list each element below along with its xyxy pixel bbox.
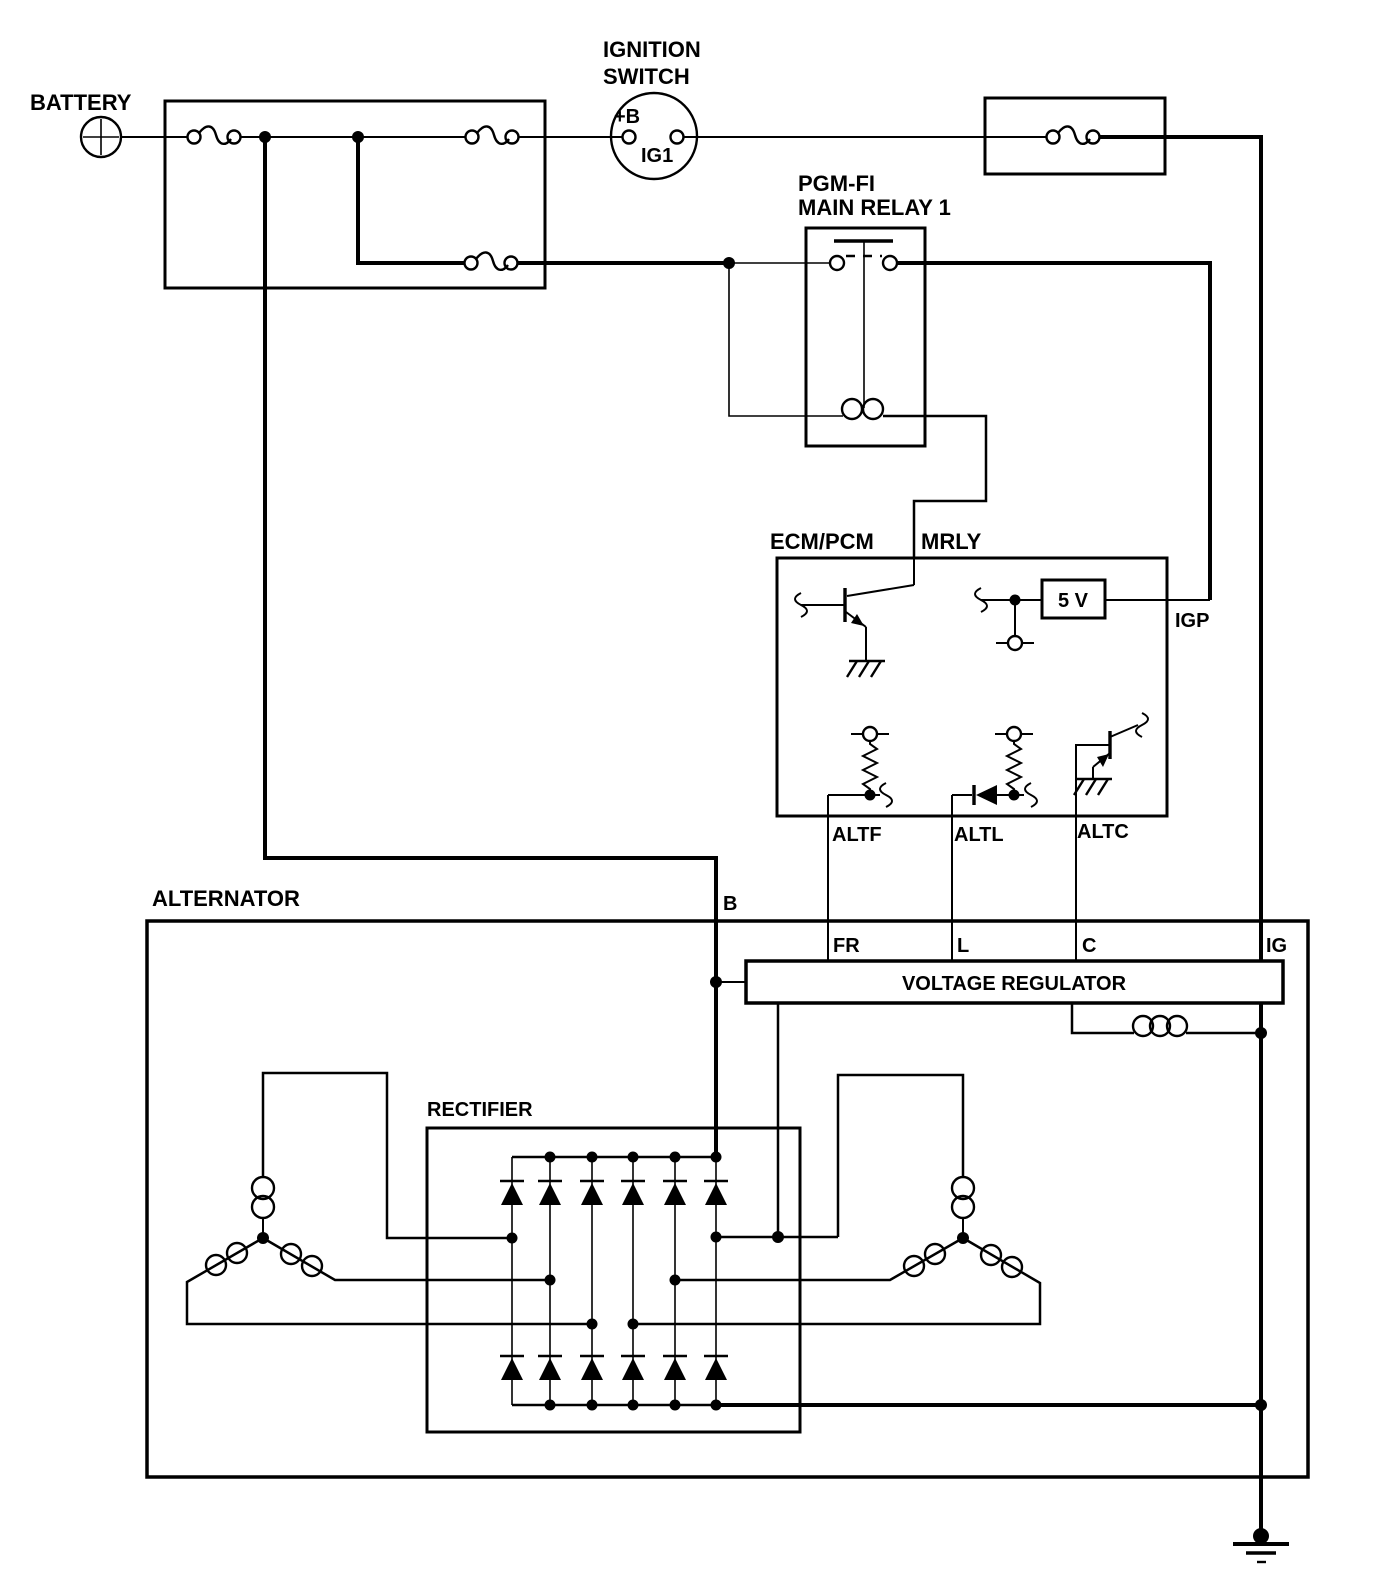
diagram-canvas: BATTERY <box>0 0 1376 1590</box>
wire-regulator-to-field-coil <box>1072 1003 1134 1033</box>
relay-contact-icon <box>830 241 897 408</box>
ignition-switch: IGNITION SWITCH +B IG1 <box>603 37 701 179</box>
wire-stator-phase6-route <box>838 1075 963 1237</box>
ecm-pcm: ECM/PCM MRLY <box>770 529 1210 961</box>
rectifier: RECTIFIER <box>427 1099 1267 1432</box>
voltage-regulator: VOLTAGE REGULATOR <box>710 961 1283 1003</box>
fuse-box-left <box>165 101 729 288</box>
terminal-icon <box>671 131 684 144</box>
junction-dot <box>628 1152 639 1163</box>
ignition-terminal-b-label: +B <box>614 106 640 128</box>
stator-winding-icon <box>952 1177 974 1238</box>
altc-label: ALTC <box>1077 821 1129 843</box>
wire-battery-to-alternator-b <box>265 137 716 1157</box>
fuse-icon <box>188 126 241 143</box>
mrly-transistor-icon <box>795 558 914 677</box>
field-coil <box>1072 1003 1267 1039</box>
diode-icon <box>500 1181 524 1205</box>
terminal-ig-label: IG <box>1266 935 1287 957</box>
terminal-b-label: B <box>723 893 737 915</box>
terminal-icon <box>623 131 636 144</box>
junction-dot <box>670 1400 681 1411</box>
diode-icon <box>974 785 997 805</box>
terminal-fr-label: FR <box>833 935 860 957</box>
connector-bracket-icon <box>880 783 892 807</box>
battery-icon <box>81 117 121 157</box>
junction-dot <box>587 1400 598 1411</box>
diode-icon <box>538 1356 562 1380</box>
mrly-label: MRLY <box>921 529 982 554</box>
ignition-switch-label-line2: SWITCH <box>603 64 690 89</box>
alternator: ALTERNATOR B FR L C IG VOLTAGE REGULATOR <box>147 886 1308 1477</box>
battery: BATTERY <box>30 90 165 157</box>
diode-icon <box>580 1356 604 1380</box>
resistor-icon <box>1007 741 1021 795</box>
ignition-terminal-ig1-label: IG1 <box>641 145 673 167</box>
ground-icon <box>1074 779 1112 795</box>
diode-icon <box>580 1181 604 1205</box>
relay-label-line2: MAIN RELAY 1 <box>798 195 951 220</box>
altf-label: ALTF <box>832 824 882 846</box>
battery-label: BATTERY <box>30 90 132 115</box>
igp-label: IGP <box>1175 610 1209 632</box>
voltage-regulator-label: VOLTAGE REGULATOR <box>902 973 1127 995</box>
test-terminal-icon <box>851 727 889 741</box>
five-volt-circuit: 5 V IGP <box>975 580 1210 650</box>
wire-stator-phase1 <box>263 1073 512 1238</box>
fuse-icon <box>465 252 518 269</box>
diode-icon <box>663 1356 687 1380</box>
field-coil-icon <box>1133 1016 1187 1036</box>
ecm-label: ECM/PCM <box>770 529 874 554</box>
junction-dot <box>545 1152 556 1163</box>
wire-relay-coil-left <box>729 263 843 416</box>
rectifier-label: RECTIFIER <box>427 1099 533 1121</box>
fuse-icon <box>466 126 519 143</box>
junction-dot <box>587 1152 598 1163</box>
diode-icon <box>621 1356 645 1380</box>
diode-icon <box>704 1356 728 1380</box>
altc-transistor-icon <box>1074 713 1148 795</box>
altc-circuit: ALTC <box>1074 713 1148 961</box>
ground-icon <box>847 661 885 677</box>
relay-label-line1: PGM-FI <box>798 171 875 196</box>
altl-circuit: ALTL <box>952 727 1037 961</box>
relay-coil-icon <box>842 399 883 419</box>
chassis-ground-icon <box>1233 1528 1289 1562</box>
junction-dot <box>711 1152 722 1163</box>
diode-icon <box>663 1181 687 1205</box>
resistor-icon <box>863 741 877 795</box>
emitter-arrow-icon <box>851 614 864 626</box>
altl-label: ALTL <box>954 824 1004 846</box>
test-terminal-icon <box>995 727 1033 741</box>
terminal-c-label: C <box>1082 935 1096 957</box>
junction-dot <box>628 1400 639 1411</box>
fuse-icon <box>1047 126 1100 143</box>
diode-icon <box>500 1356 524 1380</box>
junction-dot <box>670 1152 681 1163</box>
altf-circuit: ALTF <box>828 727 892 961</box>
test-terminal-icon <box>996 636 1034 650</box>
terminal-l-label: L <box>957 935 969 957</box>
diode-icon <box>621 1181 645 1205</box>
diode-icon <box>704 1181 728 1205</box>
diode-icon <box>538 1181 562 1205</box>
charging-system-wiring-diagram: BATTERY <box>0 0 1376 1590</box>
alternator-label: ALTERNATOR <box>152 886 300 911</box>
connector-bracket-icon <box>1025 783 1037 807</box>
junction-dot <box>545 1400 556 1411</box>
emitter-arrow-icon <box>1097 754 1109 767</box>
wire-to-fuse3 <box>358 137 464 263</box>
ignition-switch-label-line1: IGNITION <box>603 37 701 62</box>
stator-winding-icon <box>252 1177 274 1238</box>
five-volt-label: 5 V <box>1058 590 1089 612</box>
stator-right <box>633 1075 1040 1324</box>
